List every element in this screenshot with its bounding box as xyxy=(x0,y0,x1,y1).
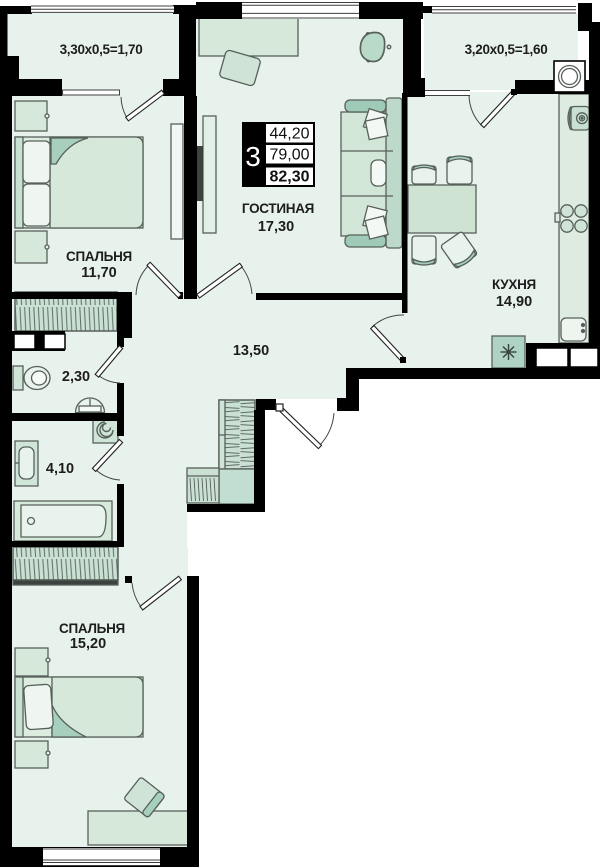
svg-text:3,30х0,5=1,70: 3,30х0,5=1,70 xyxy=(60,42,143,57)
svg-text:11,70: 11,70 xyxy=(81,265,117,281)
svg-text:82,30: 82,30 xyxy=(269,169,309,186)
svg-text:17,30: 17,30 xyxy=(258,219,294,235)
svg-text:КУХНЯ: КУХНЯ xyxy=(492,277,536,292)
svg-text:14,90: 14,90 xyxy=(496,294,532,310)
svg-text:3,20х0,5=1,60: 3,20х0,5=1,60 xyxy=(465,42,548,57)
svg-text:СПАЛЬНЯ: СПАЛЬНЯ xyxy=(66,249,132,264)
svg-text:79,00: 79,00 xyxy=(269,147,309,164)
svg-text:15,20: 15,20 xyxy=(70,636,106,652)
svg-text:13,50: 13,50 xyxy=(233,343,269,359)
svg-text:СПАЛЬНЯ: СПАЛЬНЯ xyxy=(59,621,125,636)
svg-text:4,10: 4,10 xyxy=(46,461,74,477)
svg-text:3: 3 xyxy=(245,141,261,172)
svg-text:2,30: 2,30 xyxy=(62,369,90,385)
svg-text:44,20: 44,20 xyxy=(269,126,309,143)
svg-text:ГОСТИНАЯ: ГОСТИНАЯ xyxy=(242,201,314,216)
